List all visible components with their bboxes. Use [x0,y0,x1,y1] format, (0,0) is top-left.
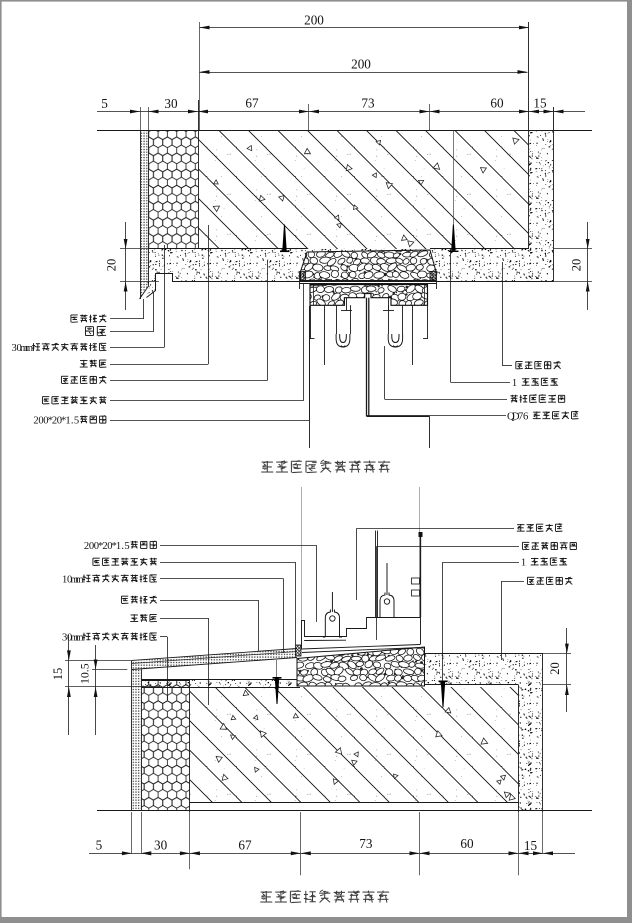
svg-text:10.5: 10.5 [77,663,91,684]
svg-text:30: 30 [154,838,168,853]
svg-text:15: 15 [533,96,547,111]
svg-text:5: 5 [96,838,103,853]
svg-text:73: 73 [359,836,373,851]
svg-text:6: 6 [523,411,528,422]
svg-text:200: 200 [351,57,371,72]
svg-text:20: 20 [548,662,562,675]
svg-text:67: 67 [245,96,259,111]
svg-text:73: 73 [361,96,375,111]
svg-text:1: 1 [512,378,517,389]
svg-text:5: 5 [101,96,108,111]
svg-text:20: 20 [570,259,584,272]
svg-text:15: 15 [524,838,538,853]
svg-text:67: 67 [238,838,252,853]
svg-text:60: 60 [460,836,474,851]
svg-text:60: 60 [490,96,504,111]
svg-text:1: 1 [116,541,121,552]
svg-text:200: 200 [304,13,324,28]
svg-text:1: 1 [521,558,526,569]
svg-text:30: 30 [164,96,178,111]
svg-text:20: 20 [105,259,119,272]
svg-text:15: 15 [51,668,65,681]
svg-text:5: 5 [74,416,79,427]
svg-text:1: 1 [65,416,70,427]
svg-text:5: 5 [124,541,129,552]
